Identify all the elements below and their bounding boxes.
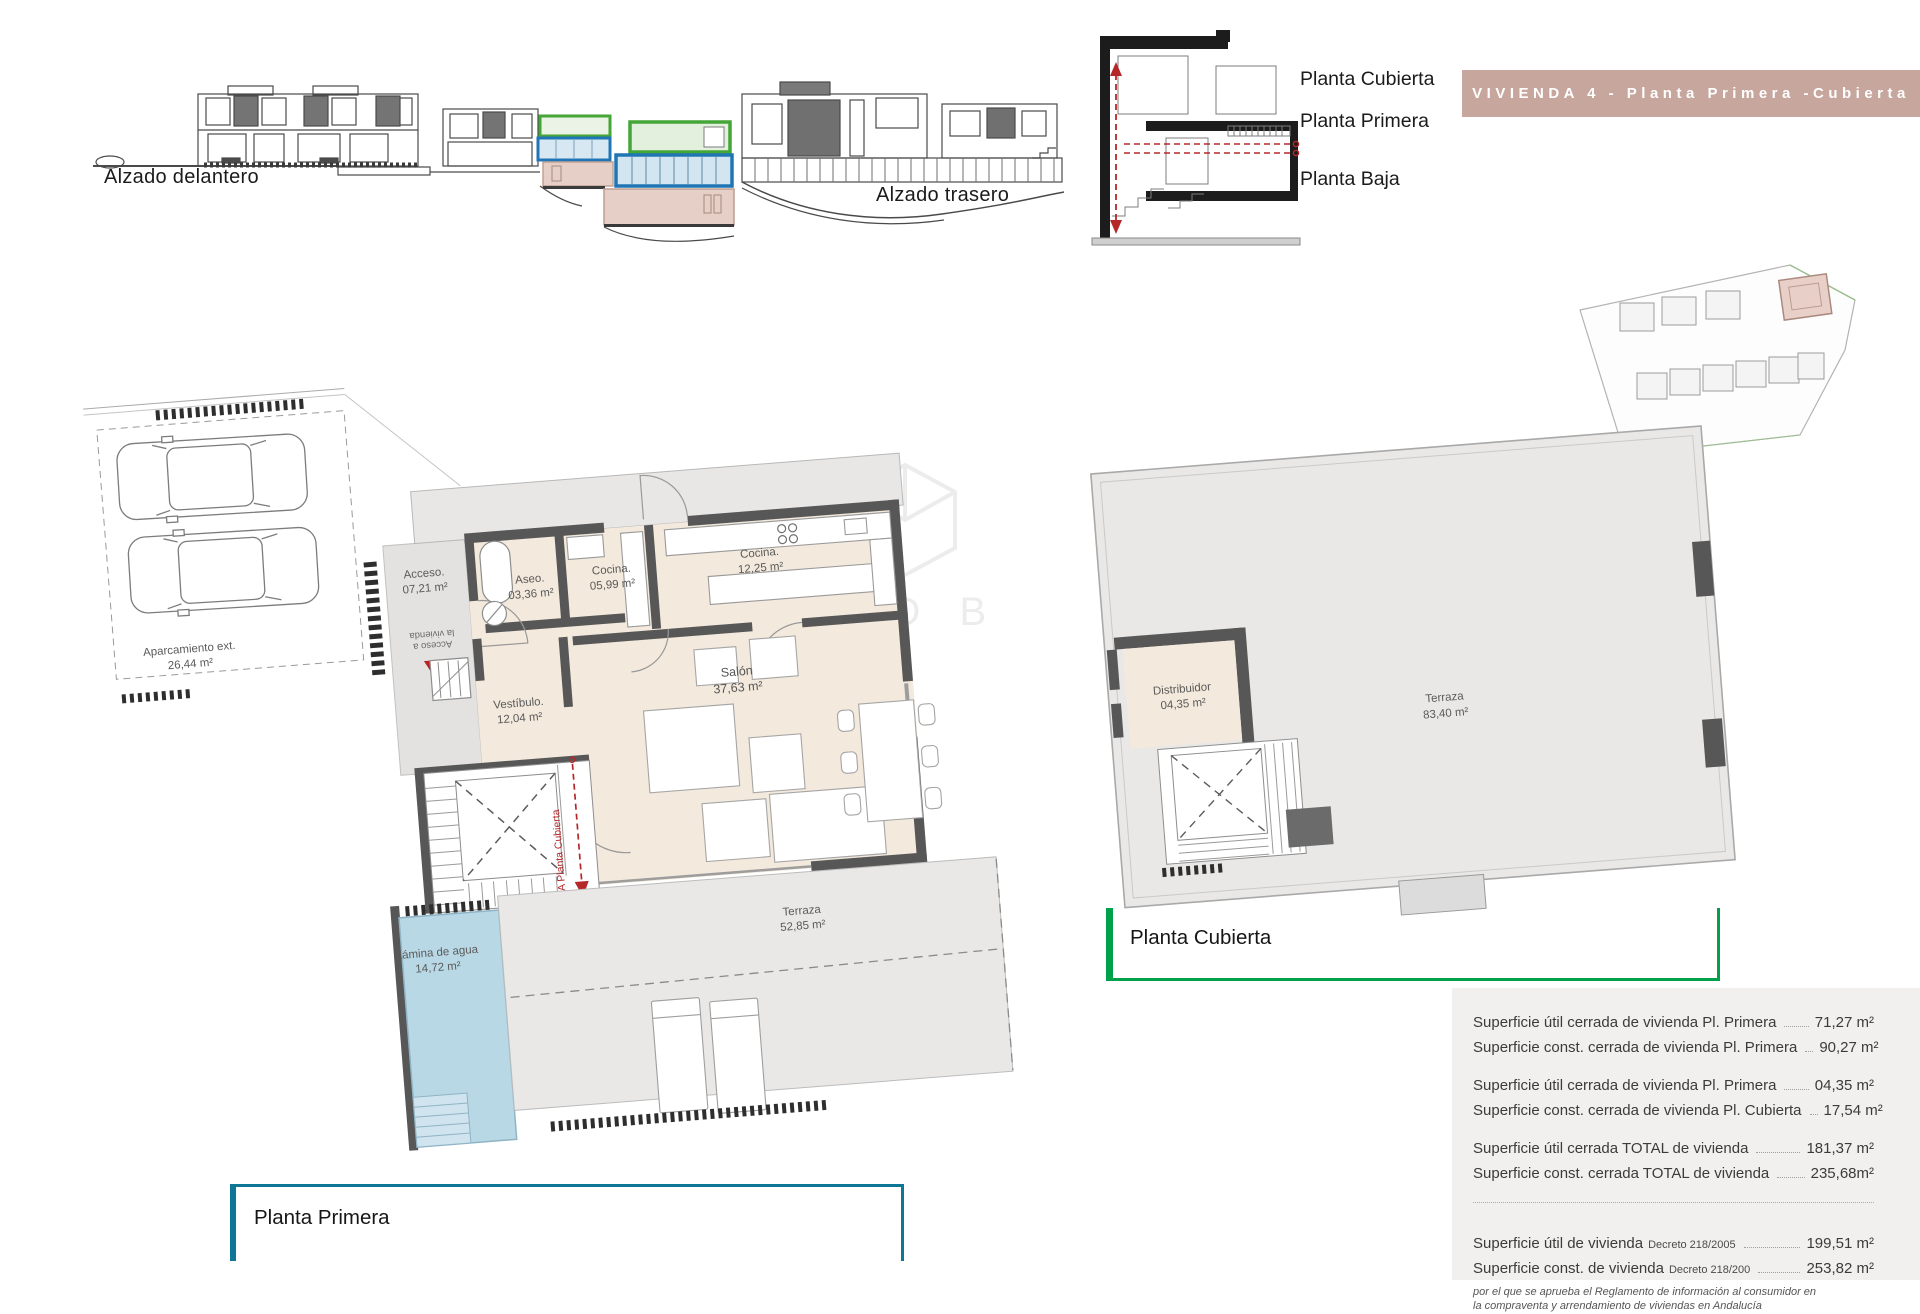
room-area-aparcamiento: 26,44 m²	[167, 657, 213, 673]
section-circulation-arrows	[1110, 62, 1299, 234]
summary-decreto: Decreto 218/2005	[1648, 1239, 1735, 1252]
plan-primera-drawing: Aparcamiento ext. 26,44 m² Acceso. 07,21…	[70, 370, 1070, 1200]
summary-value: 90,27 m²	[1819, 1039, 1878, 1056]
summary-value: 181,37 m²	[1806, 1140, 1874, 1157]
dotted-leader	[1784, 1026, 1808, 1027]
summary-label: Superficie const. de vivienda	[1473, 1260, 1664, 1277]
summary-value: 04,35 m²	[1815, 1077, 1874, 1094]
dotted-leader	[1756, 1152, 1800, 1153]
summary-decreto: Decreto 218/200	[1669, 1264, 1750, 1277]
summary-label: Superficie const. cerrada de vivienda Pl…	[1473, 1039, 1797, 1056]
parking-area: Aparcamiento ext. 26,44 m²	[97, 410, 379, 698]
summary-value: 17,54 m²	[1824, 1102, 1883, 1119]
summary-row: Superficie útil cerrada de vivienda Pl. …	[1473, 1006, 1874, 1031]
summary-value: 199,51 m²	[1806, 1235, 1874, 1252]
summary-row: Superficie const. de vivienda Decreto 21…	[1473, 1252, 1874, 1277]
summary-label: Superficie const. cerrada de vivienda Pl…	[1473, 1102, 1802, 1119]
summary-label: Superficie útil de vivienda	[1473, 1235, 1643, 1252]
planta-primera-title: Planta Primera	[254, 1206, 390, 1230]
title-banner: VIVIENDA 4 - Planta Primera -Cubierta	[1462, 70, 1920, 117]
summary-row: Superficie const. cerrada de vivienda Pl…	[1473, 1094, 1874, 1119]
summary-row: Superficie útil cerrada TOTAL de viviend…	[1473, 1132, 1874, 1157]
summary-value: 253,82 m²	[1806, 1260, 1874, 1277]
rear-highlight-boxes	[604, 122, 734, 227]
title-banner-text: VIVIENDA 4 - Planta Primera -Cubierta	[1472, 85, 1910, 102]
summary-row: Superficie útil cerrada de vivienda Pl. …	[1473, 1069, 1874, 1094]
room-label-aparcamiento: Aparcamiento ext.	[143, 640, 236, 659]
summary-label: Superficie const. cerrada TOTAL de vivie…	[1473, 1165, 1769, 1182]
summary-row: Superficie const. cerrada de vivienda Pl…	[1473, 1031, 1874, 1056]
front-elevation-label: Alzado delantero	[104, 166, 259, 189]
room-label-aseo: Aseo.	[515, 572, 545, 586]
lower-terrace: Terraza 52,85 m²	[498, 857, 1015, 1130]
summary-label: Superficie útil cerrada de vivienda Pl. …	[1473, 1077, 1776, 1094]
dotted-leader	[1805, 1051, 1813, 1052]
dotted-leader	[1784, 1089, 1808, 1090]
summary-row: Superficie const. cerrada TOTAL de vivie…	[1473, 1157, 1874, 1182]
room-label-salon: Salón	[720, 663, 753, 679]
summary-value: 235,68m²	[1811, 1165, 1874, 1182]
dotted-leader	[1777, 1177, 1804, 1178]
dotted-leader	[1758, 1272, 1800, 1273]
summary-divider	[1473, 1202, 1874, 1203]
section-floor-label-baja: Planta Baja	[1300, 168, 1400, 191]
dotted-leader	[1744, 1247, 1801, 1248]
summary-label: Superficie útil cerrada de vivienda Pl. …	[1473, 1014, 1776, 1031]
rear-elevation-label: Alzado trasero	[876, 184, 1009, 207]
planta-cubierta-title: Planta Cubierta	[1130, 926, 1271, 950]
car	[116, 428, 309, 525]
section-floor-label-cubierta: Planta Cubierta	[1300, 68, 1434, 91]
rear-elevation-drawing	[592, 56, 1072, 236]
summary-label: Superficie útil cerrada TOTAL de viviend…	[1473, 1140, 1748, 1157]
section-drawing	[1088, 26, 1313, 261]
summary-footnote: por el que se aprueba el Reglamento de i…	[1473, 1286, 1818, 1314]
site-plan-highlight-unit	[1779, 274, 1832, 320]
summary-row: Superficie útil de vivienda Decreto 218/…	[1473, 1227, 1874, 1252]
surface-summary-panel: Superficie útil cerrada de vivienda Pl. …	[1452, 988, 1920, 1280]
dotted-leader	[1810, 1114, 1818, 1115]
car	[127, 522, 320, 619]
section-floor-label-primera: Planta Primera	[1300, 110, 1429, 133]
summary-value: 71,27 m²	[1815, 1014, 1874, 1031]
